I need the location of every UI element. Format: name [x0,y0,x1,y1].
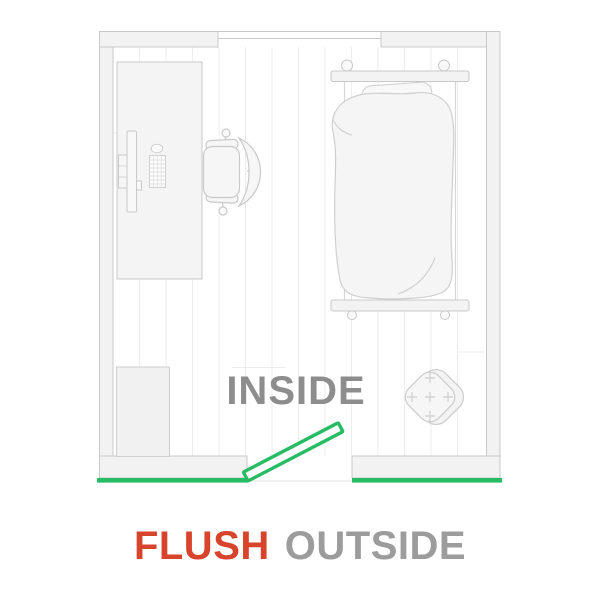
desk [117,62,202,279]
wall-top-left [100,32,219,48]
diagram-canvas: INSIDE FLUSH OUTSIDE [0,0,600,600]
wall-bottom-left [100,456,248,478]
inside-label: INSIDE [226,369,365,413]
wall-left [100,32,114,478]
bed-post [441,311,450,320]
window-top [218,32,381,39]
desk-mouse [151,144,163,152]
bed-post [439,60,450,71]
chair-caster [219,207,227,215]
bed-footboard [331,300,469,311]
floor-plan: INSIDE [0,0,600,520]
office-chair [204,129,261,215]
flush-mount-line-left [97,478,248,483]
chair-seat [204,147,240,198]
desk-monitor [127,131,137,212]
door-leaf [243,423,343,481]
closet [117,367,170,457]
flush-mount-line-right [352,478,502,483]
bed-post [342,60,353,71]
chair-caster [222,129,230,137]
bed-post [348,311,357,320]
chair-backrest [239,138,261,206]
accent-chair [400,364,469,430]
wall-bottom-right [352,456,500,478]
wall-top-right [381,32,500,48]
bed [331,60,469,320]
caption-outside: OUTSIDE [285,524,466,568]
mount-caption: FLUSH OUTSIDE [0,524,600,568]
bed-headboard [331,71,469,82]
wall-right [487,32,501,478]
caption-flush: FLUSH [134,524,270,568]
bed-duvet [332,93,454,299]
